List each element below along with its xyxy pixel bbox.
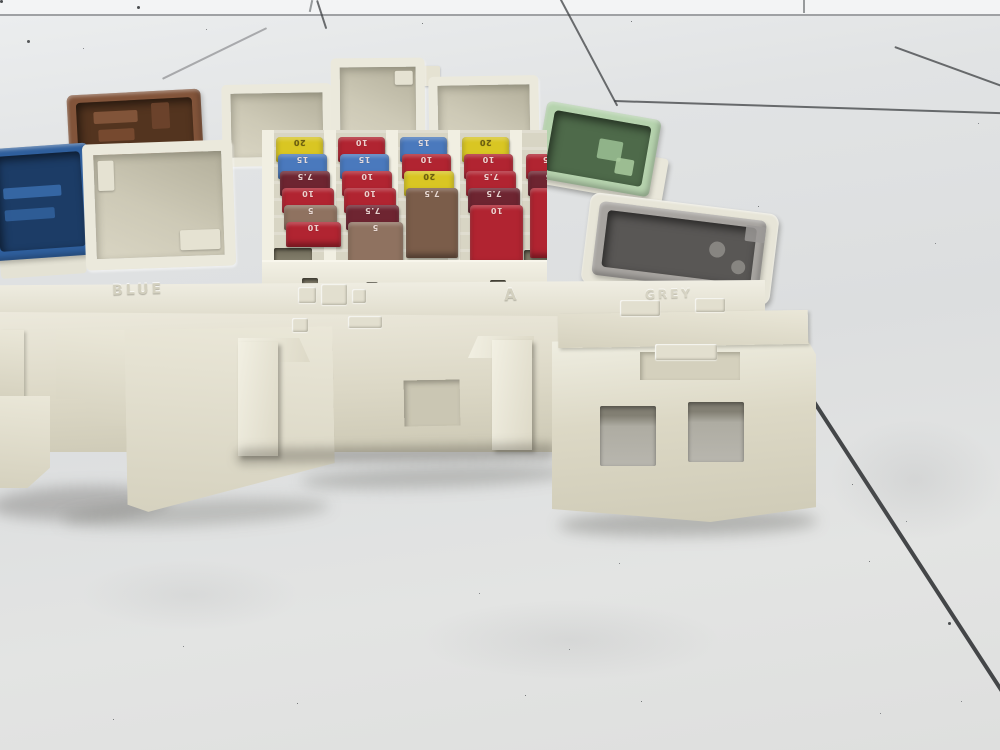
snap-hook: [238, 342, 278, 456]
green-connector-rib: [614, 157, 635, 176]
fuse-amp-label: 15: [340, 154, 389, 165]
fuse-amp-label: 10: [282, 188, 334, 199]
base-top-tab: [348, 316, 382, 328]
fuse-amp-label: 7.5: [280, 171, 330, 182]
fuse-10a: 10: [530, 188, 547, 258]
floor-smudge: [80, 560, 300, 630]
fuse-10a: 10: [470, 205, 523, 267]
floor-smudge: [830, 420, 1000, 540]
socket-ledge: [180, 229, 221, 250]
fuse-amp-label: 10: [342, 171, 392, 182]
blue-connector-cavity: [0, 151, 86, 252]
molded-mark: [352, 289, 366, 303]
right-bracket-tab: [620, 300, 660, 316]
fuse-amp-label: 10: [464, 154, 513, 165]
fuse-amp-label: 10: [402, 154, 451, 165]
embossed-mark-a: A: [504, 285, 517, 305]
base-tab: [0, 396, 50, 488]
fuse-amp-label: 7.5: [466, 171, 516, 182]
snap-hook: [492, 340, 532, 450]
socket-ledge: [97, 161, 114, 192]
base-top-tab: [292, 318, 308, 332]
fuse-amp-label: 15: [400, 137, 447, 148]
base-recess: [404, 380, 461, 427]
brown-connector-latch: [151, 102, 170, 129]
wall-tile-joint: [803, 0, 805, 13]
fuse-amp-label: 10: [344, 188, 396, 199]
molded-mark: [298, 287, 316, 303]
fuse-amp-label: 20: [404, 171, 454, 182]
grey-connector-cavity: [601, 210, 757, 285]
fuse-amp-label: 15: [278, 154, 327, 165]
tower-ledge: [395, 71, 413, 85]
floor-specks: [0, 0, 3, 3]
grey-connector-tab: [744, 225, 766, 243]
fuse-amp-label: 7.5: [528, 171, 547, 182]
base-tab: [0, 330, 24, 400]
fuse-amp-label: 7.5: [346, 205, 399, 216]
fuse-7.5a: 7.5: [406, 188, 458, 258]
fuse-grid: 20157.510510101510107.551510207.520107.5…: [262, 130, 547, 300]
right-bracket-tab: [695, 298, 725, 312]
wall-tile-strip: [0, 0, 1000, 16]
fuse-amp-label: 10: [338, 137, 385, 148]
fuse-10a: 10: [286, 222, 341, 247]
fuse-amp-label: 10: [530, 188, 547, 199]
fuse-amp-label: 7.5: [468, 188, 520, 199]
fuse-amp-label: 5: [284, 205, 337, 216]
white-socket: [82, 139, 236, 270]
embossed-label-blue: BLUE: [112, 281, 165, 299]
fuse-amp-label: 10: [470, 205, 523, 216]
bracket-window: [688, 402, 744, 462]
floor-smudge: [420, 600, 720, 680]
fuse-amp-label: 5: [348, 222, 403, 233]
molded-mark: [321, 284, 347, 305]
fuse-amp-label: 7.5: [406, 188, 458, 199]
embossed-label-grey: GREY: [645, 286, 693, 302]
brown-connector-rib: [98, 128, 135, 142]
right-bracket-boss: [655, 344, 717, 360]
bracket-window: [600, 406, 656, 466]
fuse-amp-label: 10: [286, 222, 341, 233]
fuse-amp-label: 7.5: [526, 154, 547, 165]
fuse-amp-label: 20: [462, 137, 509, 148]
photo-scene: 20157.510510101510107.551510207.520107.5…: [0, 0, 1000, 750]
right-bracket-top: [558, 310, 809, 348]
fuse-amp-label: 20: [276, 137, 323, 148]
brown-connector-rib: [93, 110, 138, 124]
